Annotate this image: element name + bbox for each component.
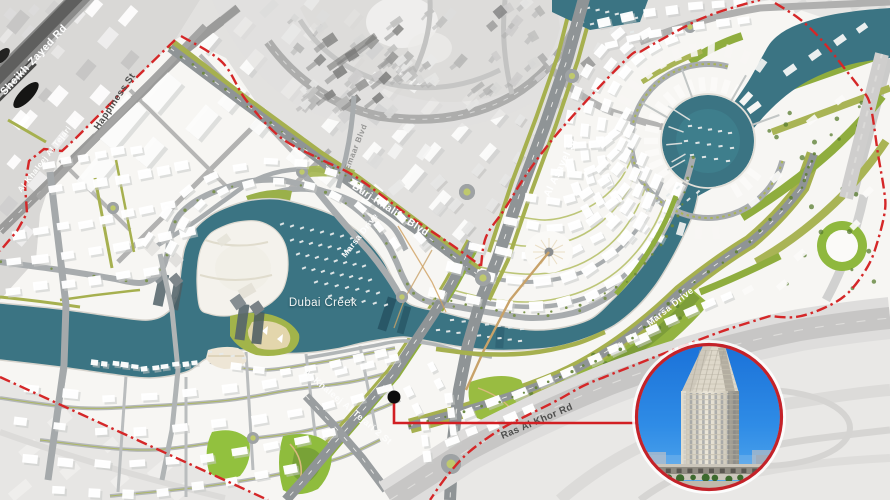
svg-text:Dubai Creek: Dubai Creek	[289, 297, 357, 309]
